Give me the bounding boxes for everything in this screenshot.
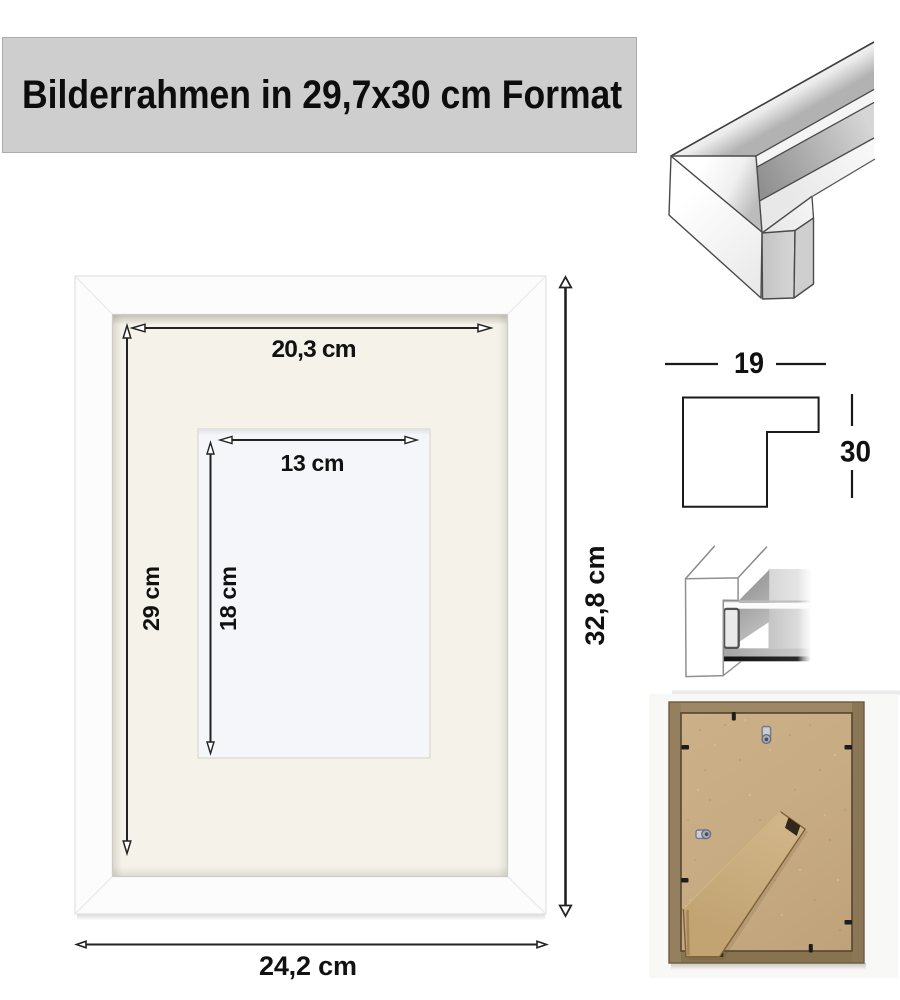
svg-text:19: 19 — [734, 347, 764, 380]
svg-text:18 cm: 18 cm — [215, 566, 241, 631]
svg-text:32,8 cm: 32,8 cm — [580, 546, 610, 646]
svg-text:24,2 cm: 24,2 cm — [259, 951, 357, 981]
svg-text:20,3 cm: 20,3 cm — [272, 336, 357, 363]
svg-text:13 cm: 13 cm — [281, 450, 345, 476]
svg-text:29 cm: 29 cm — [138, 566, 164, 631]
svg-text:30: 30 — [840, 436, 871, 469]
